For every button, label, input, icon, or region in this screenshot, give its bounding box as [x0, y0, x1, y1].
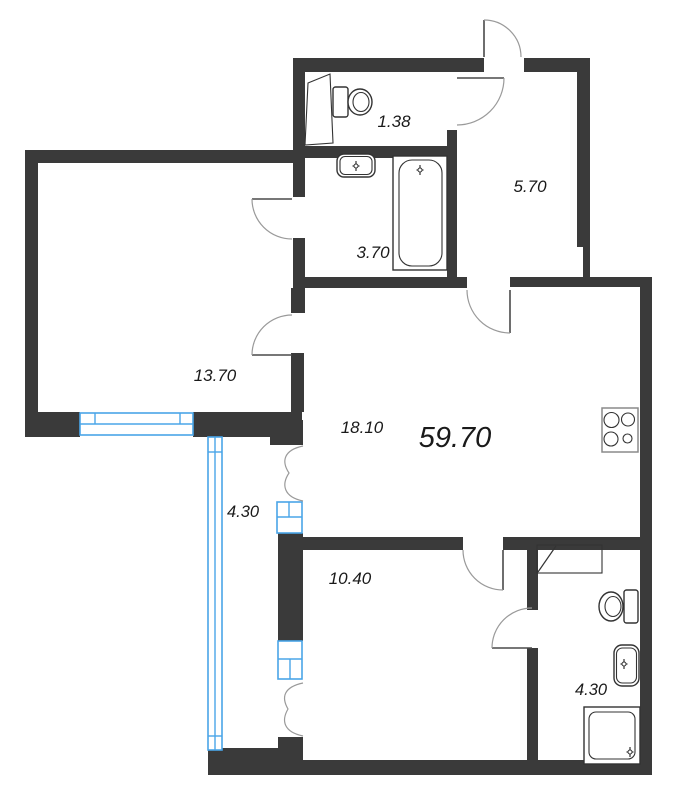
toilet-icon: [333, 87, 372, 117]
window-balcony-box-lower: [278, 641, 302, 679]
wall-main-top-right: [510, 277, 652, 287]
wall-column-seg2: [291, 353, 304, 412]
room-label-shower-room: 4.30: [575, 681, 608, 699]
wall-bottom-balcony: [208, 748, 280, 775]
wall-showerroom-left-lower: [527, 648, 538, 760]
room-label-kitchen-living: 18.10: [341, 418, 384, 437]
wall-block-left-upper: [293, 58, 305, 197]
wall-balcony-mid: [278, 533, 303, 641]
wall-top-left: [295, 58, 484, 72]
wall-room-left-bottom-b: [193, 412, 302, 437]
toilet2-icon: [599, 590, 638, 623]
door-balcony-lower: [285, 683, 303, 736]
room-label-hallway: 5.70: [513, 177, 547, 196]
counter-icon: [305, 74, 333, 145]
wall-hall-right: [577, 58, 590, 247]
floor-plan: 1.38 3.70 5.70 13.70 18.10 59.70 4.30 10…: [0, 0, 681, 800]
room-label-room-left: 13.70: [194, 366, 237, 385]
window-balcony-glazing: [208, 437, 222, 750]
wall-room-left-left: [25, 150, 38, 437]
wall-main-top-left: [302, 277, 467, 288]
door-roombottom-showerroom: [492, 608, 532, 648]
total-area-label: 59.70: [419, 422, 492, 454]
windows: [80, 413, 302, 750]
wall-balcony-stub: [278, 737, 303, 760]
wall-column-seg1: [291, 288, 305, 313]
wall-hall-right-step: [583, 245, 590, 278]
stove-icon: [602, 408, 638, 452]
door-hall-main: [467, 290, 510, 333]
shower-icon: [584, 707, 640, 764]
wall-room-left-bottom-a: [25, 412, 80, 437]
room-label-room-bottom: 10.40: [329, 569, 372, 588]
room-label-balcony: 4.30: [227, 503, 260, 521]
wall-room-left-top: [25, 150, 302, 163]
door-main-roombottom: [463, 550, 503, 590]
bathtub-icon: [393, 156, 447, 270]
room-label-wc: 1.38: [377, 112, 411, 131]
door-entry: [484, 20, 521, 57]
window-balcony-box-upper: [277, 502, 302, 533]
wall-mid-divider-right: [503, 537, 652, 550]
wall-bath-hall-divider: [447, 130, 457, 277]
window-room-left: [80, 413, 193, 435]
door-roomleft-bathroom: [252, 199, 292, 239]
floor-plan-canvas: 1.38 3.70 5.70 13.70 18.10 59.70 4.30 10…: [0, 0, 681, 800]
sink2-icon: [614, 645, 639, 686]
door-roomleft-main: [252, 315, 292, 355]
wall-showerroom-left-upper: [527, 550, 538, 610]
wall-mid-divider-left: [303, 537, 463, 550]
door-wc-hall: [457, 78, 504, 125]
sink-icon: [337, 154, 375, 177]
room-label-bathroom: 3.70: [356, 243, 390, 262]
wall-right-exterior: [640, 277, 652, 775]
door-balcony-upper: [285, 446, 303, 501]
